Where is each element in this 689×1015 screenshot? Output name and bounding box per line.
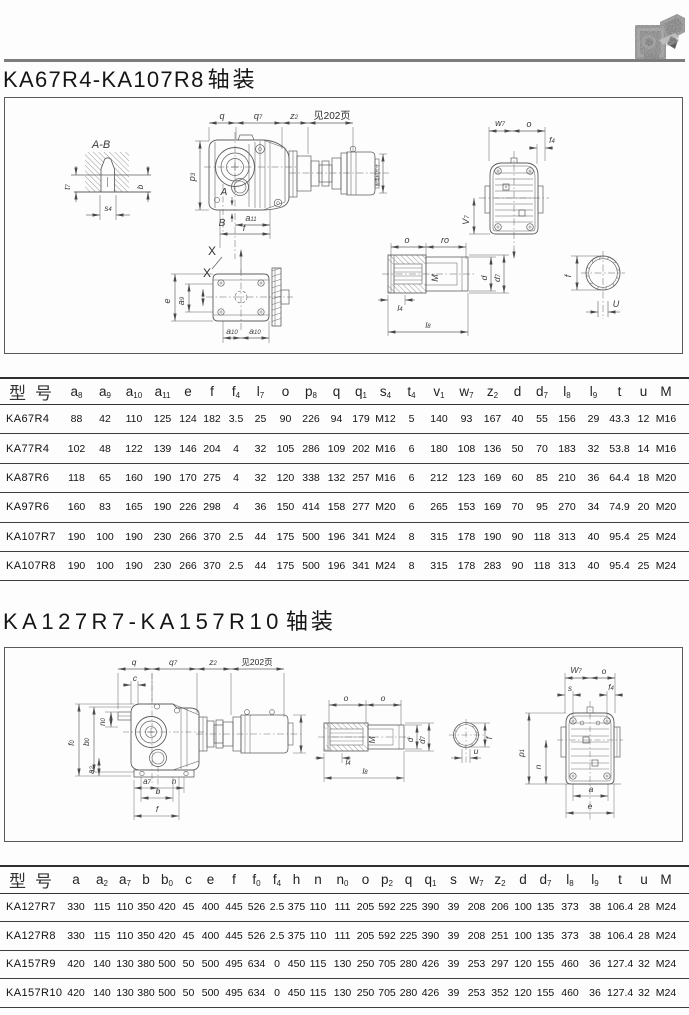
svg-text:n: n <box>172 777 177 786</box>
svg-text:u: u <box>474 746 479 756</box>
svg-text:o: o <box>381 693 386 703</box>
svg-text:a9: a9 <box>176 296 186 305</box>
svg-text:l4: l4 <box>397 303 403 313</box>
svg-text:A-B: A-B <box>91 139 110 151</box>
svg-text:f: f <box>156 804 160 814</box>
svg-text:q7: q7 <box>169 657 178 667</box>
svg-text:f: f <box>243 223 247 233</box>
svg-text:U: U <box>613 299 620 309</box>
svg-text:d7: d7 <box>418 735 427 743</box>
svg-text:a7: a7 <box>143 777 151 786</box>
svg-text:z2: z2 <box>289 111 299 121</box>
svg-text:a10: a10 <box>249 326 261 336</box>
svg-text:a: a <box>589 784 594 794</box>
svg-text:b: b <box>136 184 145 189</box>
svg-text:ro: ro <box>441 235 449 245</box>
svg-text:d: d <box>406 737 415 742</box>
svg-text:o: o <box>602 666 607 676</box>
svg-text:l8: l8 <box>425 320 431 330</box>
svg-text:f: f <box>563 273 573 277</box>
svg-text:p3: p3 <box>187 172 197 182</box>
svg-text:p1: p1 <box>516 749 526 758</box>
svg-text:A: A <box>220 187 228 198</box>
svg-text:s4: s4 <box>104 204 112 213</box>
svg-text:s: s <box>568 684 572 693</box>
svg-text:l8: l8 <box>362 767 368 776</box>
svg-text:z2: z2 <box>208 657 217 667</box>
svg-text:M: M <box>430 274 440 282</box>
svg-text:a2: a2 <box>87 765 96 773</box>
svg-text:n0: n0 <box>98 717 107 725</box>
svg-text:W7: W7 <box>570 665 582 675</box>
svg-text:X: X <box>203 266 211 280</box>
svg-text:o: o <box>526 119 531 129</box>
svg-text:q7: q7 <box>254 111 263 121</box>
svg-text:q: q <box>219 111 224 121</box>
svg-text:o: o <box>404 235 409 245</box>
svg-text:n: n <box>533 764 543 769</box>
svg-text:f4: f4 <box>608 683 614 692</box>
svg-text:B: B <box>219 218 226 229</box>
svg-text:e: e <box>588 801 593 811</box>
svg-text:w7: w7 <box>495 118 506 128</box>
svg-text:b: b <box>156 786 161 796</box>
svg-text:t7: t7 <box>63 184 72 190</box>
svg-text:M: M <box>367 736 377 744</box>
svg-text:V7: V7 <box>461 215 471 225</box>
svg-text:a10: a10 <box>226 326 238 336</box>
svg-text:q: q <box>132 657 137 667</box>
svg-text:d7: d7 <box>492 273 502 282</box>
svg-text:X: X <box>208 244 216 258</box>
svg-text:配电机尺寸: 配电机尺寸 <box>374 163 381 186</box>
svg-text:e: e <box>162 298 172 303</box>
svg-text:见202页: 见202页 <box>241 657 272 667</box>
svg-text:f0: f0 <box>66 739 76 745</box>
svg-text:f4: f4 <box>549 135 555 145</box>
svg-text:见202页: 见202页 <box>314 110 351 122</box>
svg-text:d: d <box>479 275 489 280</box>
svg-text:a11: a11 <box>245 213 256 223</box>
svg-text:o: o <box>344 693 349 703</box>
svg-text:f: f <box>484 735 494 739</box>
svg-text:b0: b0 <box>81 737 91 746</box>
svg-text:c: c <box>133 673 138 683</box>
